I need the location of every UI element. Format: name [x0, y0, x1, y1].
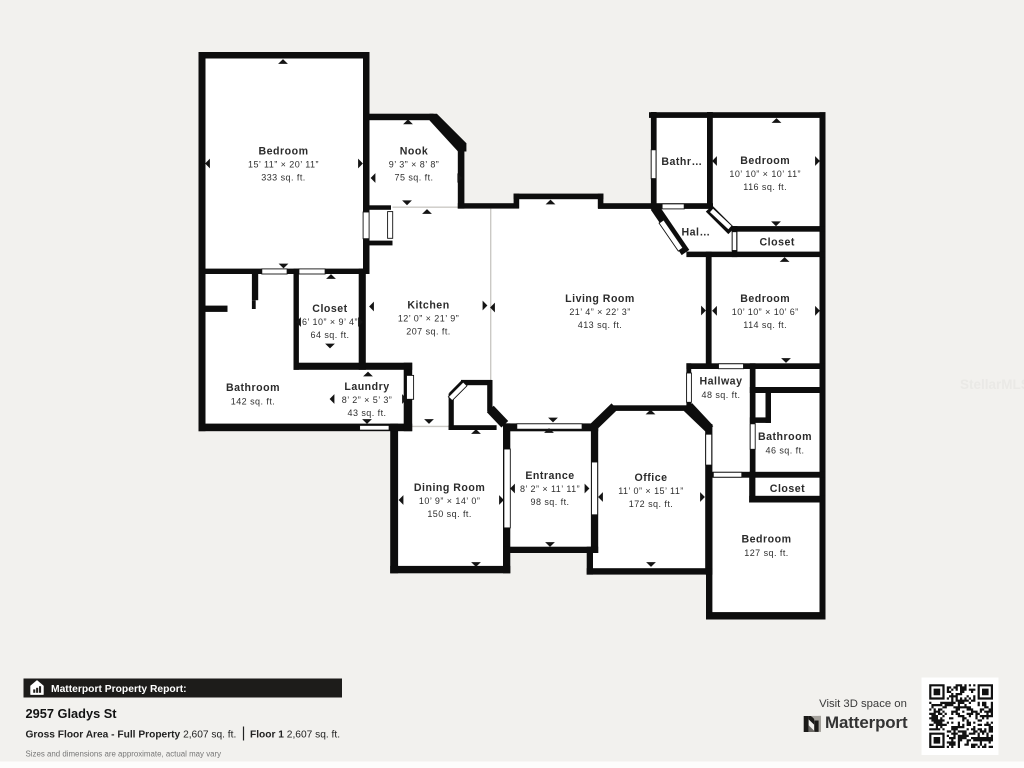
svg-text:75 sq. ft.: 75 sq. ft.: [394, 172, 433, 182]
svg-text:15’ 11” × 20’ 11”: 15’ 11” × 20’ 11”: [248, 160, 319, 170]
svg-text:Kitchen: Kitchen: [407, 300, 449, 312]
svg-text:Closet: Closet: [760, 237, 795, 249]
svg-text:114 sq. ft.: 114 sq. ft.: [743, 320, 787, 330]
svg-text:Matterport Property Report:: Matterport Property Report:: [51, 684, 187, 695]
svg-text:Bedroom: Bedroom: [740, 155, 790, 167]
svg-text:Closet: Closet: [770, 483, 805, 495]
svg-text:8’ 2” × 5’ 3”: 8’ 2” × 5’ 3”: [342, 395, 392, 405]
svg-text:8’ 2” × 11’ 11”: 8’ 2” × 11’ 11”: [520, 484, 580, 494]
svg-text:10’ 10” × 10’ 11”: 10’ 10” × 10’ 11”: [729, 169, 801, 179]
svg-text:Sizes and dimensions are appro: Sizes and dimensions are approximate, ac…: [26, 750, 222, 759]
svg-text:Bedroom: Bedroom: [259, 146, 309, 158]
svg-text:21’ 4” × 22’ 3”: 21’ 4” × 22’ 3”: [569, 307, 630, 317]
svg-text:StellarMLS: StellarMLS: [960, 377, 1024, 392]
svg-text:64 sq. ft.: 64 sq. ft.: [310, 330, 349, 340]
svg-text:Bedroom: Bedroom: [742, 534, 792, 546]
svg-text:172 sq. ft.: 172 sq. ft.: [629, 499, 673, 509]
svg-text:Visit 3D space on: Visit 3D space on: [819, 698, 907, 710]
svg-text:413 sq. ft.: 413 sq. ft.: [578, 320, 622, 330]
svg-text:207 sq. ft.: 207 sq. ft.: [406, 326, 450, 336]
svg-text:Matterport: Matterport: [825, 713, 908, 732]
svg-text:11’ 0” × 15’ 11”: 11’ 0” × 15’ 11”: [618, 486, 684, 496]
svg-text:Gross Floor Area - Full Proper: Gross Floor Area - Full Property 2,607 s…: [26, 730, 237, 741]
svg-text:6’ 10” × 9’ 4”: 6’ 10” × 9’ 4”: [302, 317, 358, 327]
svg-text:Bathroom: Bathroom: [226, 382, 280, 394]
svg-text:Hallway: Hallway: [700, 376, 743, 388]
svg-text:Living Room: Living Room: [565, 293, 635, 305]
svg-text:Closet: Closet: [312, 303, 347, 315]
svg-text:Nook: Nook: [400, 146, 428, 158]
svg-text:Laundry: Laundry: [344, 381, 389, 393]
svg-text:Dining Room: Dining Room: [414, 482, 485, 494]
svg-text:Hal…: Hal…: [681, 227, 710, 239]
svg-text:46 sq. ft.: 46 sq. ft.: [765, 446, 804, 456]
svg-text:Office: Office: [634, 472, 667, 484]
svg-text:127 sq. ft.: 127 sq. ft.: [744, 548, 788, 558]
svg-text:150 sq. ft.: 150 sq. ft.: [427, 509, 471, 519]
svg-text:Bathroom: Bathroom: [758, 431, 812, 443]
svg-text:48 sq. ft.: 48 sq. ft.: [701, 390, 740, 400]
svg-text:10’ 9” × 14’ 0”: 10’ 9” × 14’ 0”: [419, 496, 480, 506]
svg-text:116 sq. ft.: 116 sq. ft.: [743, 182, 787, 192]
svg-text:10’ 10” × 10’ 6”: 10’ 10” × 10’ 6”: [732, 307, 799, 317]
svg-text:Floor 1 2,607 sq. ft.: Floor 1 2,607 sq. ft.: [250, 730, 340, 741]
svg-text:98 sq. ft.: 98 sq. ft.: [530, 497, 569, 507]
svg-text:333 sq. ft.: 333 sq. ft.: [261, 172, 305, 182]
svg-text:9’ 3” × 8’ 8”: 9’ 3” × 8’ 8”: [389, 160, 439, 170]
svg-text:Entrance: Entrance: [525, 470, 574, 482]
svg-text:43 sq. ft.: 43 sq. ft.: [347, 408, 386, 418]
svg-text:142 sq. ft.: 142 sq. ft.: [231, 397, 275, 407]
svg-text:Bathr…: Bathr…: [661, 156, 702, 168]
svg-text:12’ 0” × 21’ 9”: 12’ 0” × 21’ 9”: [398, 314, 459, 324]
svg-text:2957 Gladys St: 2957 Gladys St: [26, 706, 118, 721]
svg-text:Bedroom: Bedroom: [740, 293, 790, 305]
